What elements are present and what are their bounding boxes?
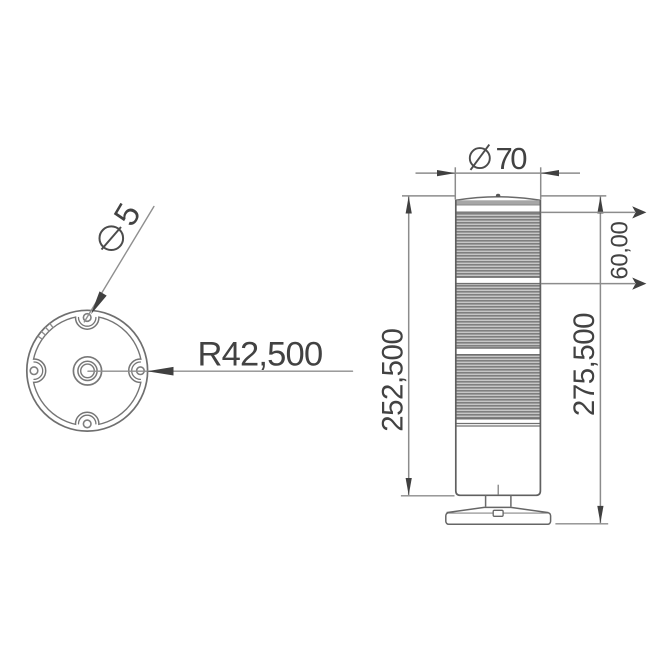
- svg-text:70: 70: [496, 141, 528, 176]
- svg-text:252,500: 252,500: [377, 329, 410, 432]
- svg-text:60,00: 60,00: [607, 222, 634, 280]
- svg-text:R42,500: R42,500: [198, 335, 323, 373]
- svg-text:275,500: 275,500: [568, 313, 601, 416]
